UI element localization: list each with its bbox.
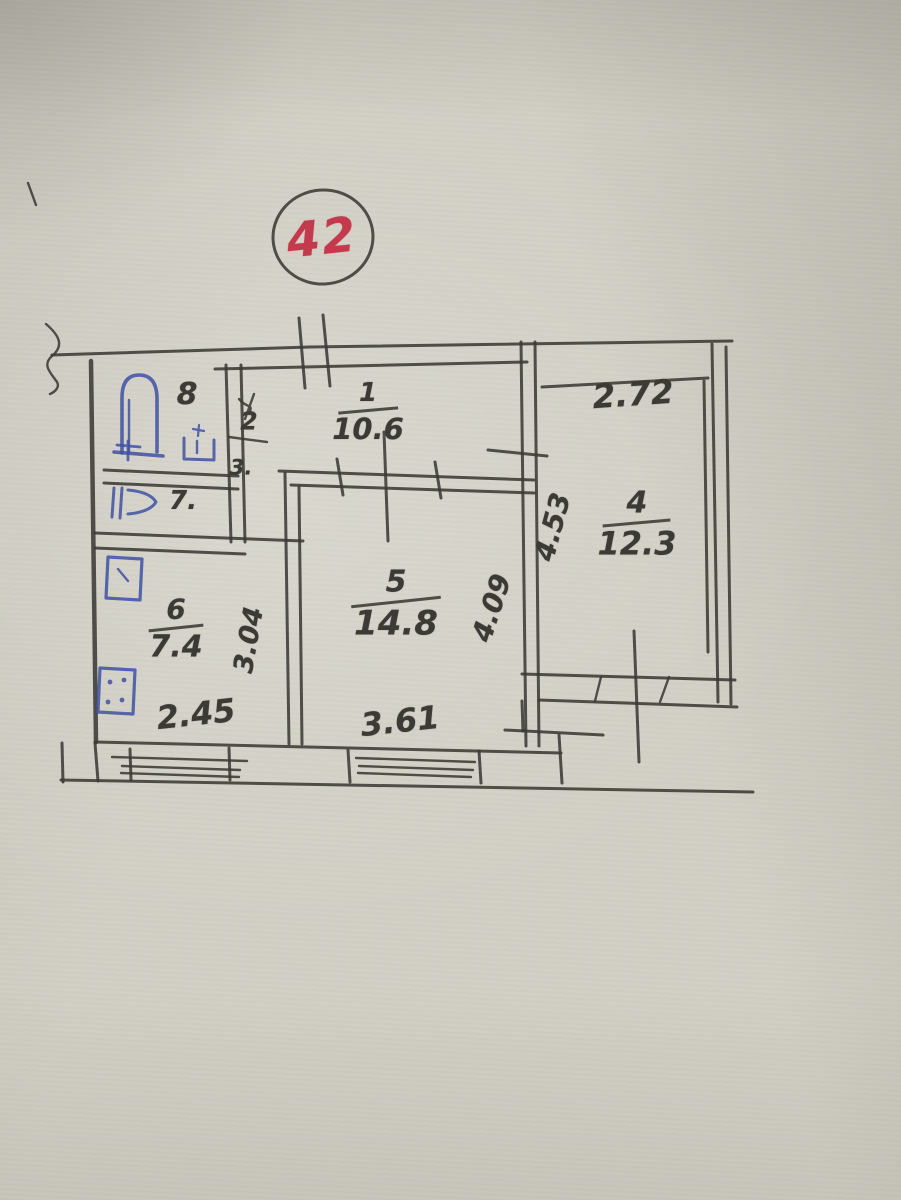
dimension-kitchen-bottom-width: 2.45 xyxy=(155,694,237,734)
door-opening-tick xyxy=(337,459,343,495)
room-area: 7.4 xyxy=(149,633,202,663)
floor-plan-photo: 42 8 2 3. 7. 1 10.6 4 12.3 5 14.8 6 7.4 … xyxy=(0,0,901,1200)
door-opening-tick xyxy=(488,450,547,456)
toilet-icon xyxy=(112,488,156,518)
floor-plan-drawing xyxy=(0,0,901,1200)
kitchen-sink-icon xyxy=(106,557,142,600)
room-area: 10.6 xyxy=(332,415,404,444)
entrance-door-tick xyxy=(299,318,305,388)
windows xyxy=(112,748,481,783)
room-label-bathroom: 8 xyxy=(177,380,198,410)
room-label-hallway: 1 10.6 xyxy=(332,380,404,444)
room-label-room4: 4 12.3 xyxy=(598,489,677,560)
door-opening-tick xyxy=(435,462,441,498)
room-label-room5: 5 14.8 xyxy=(351,568,441,641)
room-label-kitchen: 6 7.4 xyxy=(149,596,204,663)
room-label-toilet: 7. xyxy=(169,488,197,514)
room-number: 4 xyxy=(627,489,648,519)
washbasin-icon xyxy=(184,425,214,460)
glazing-tick xyxy=(660,677,669,702)
room-label-closet2: 2 xyxy=(240,409,257,434)
room-label-closet3: 3. xyxy=(230,458,253,479)
stove-icon xyxy=(98,668,135,714)
window-center-line xyxy=(634,631,639,762)
wall-break-squiggle xyxy=(46,324,59,394)
pencil-stray-marks xyxy=(28,183,36,205)
glazing-tick xyxy=(595,677,601,701)
room-area: 14.8 xyxy=(354,607,438,641)
entrance-door-tick xyxy=(323,315,330,386)
room-number: 1 xyxy=(359,380,377,406)
stamp-apartment-number: 42 xyxy=(284,210,359,265)
dimension-leader-line xyxy=(384,432,388,541)
dimension-room5-bottom-width: 3.61 xyxy=(359,701,441,741)
kitchen-window-icon xyxy=(112,748,247,780)
label-underline xyxy=(229,437,267,442)
room-number: 5 xyxy=(386,568,407,598)
room-area: 12.3 xyxy=(598,528,677,560)
dimension-room4-top-width: 2.72 xyxy=(591,375,675,414)
room5-window-icon xyxy=(348,750,481,783)
room-number: 6 xyxy=(166,596,185,624)
bathtub-icon xyxy=(114,375,163,460)
